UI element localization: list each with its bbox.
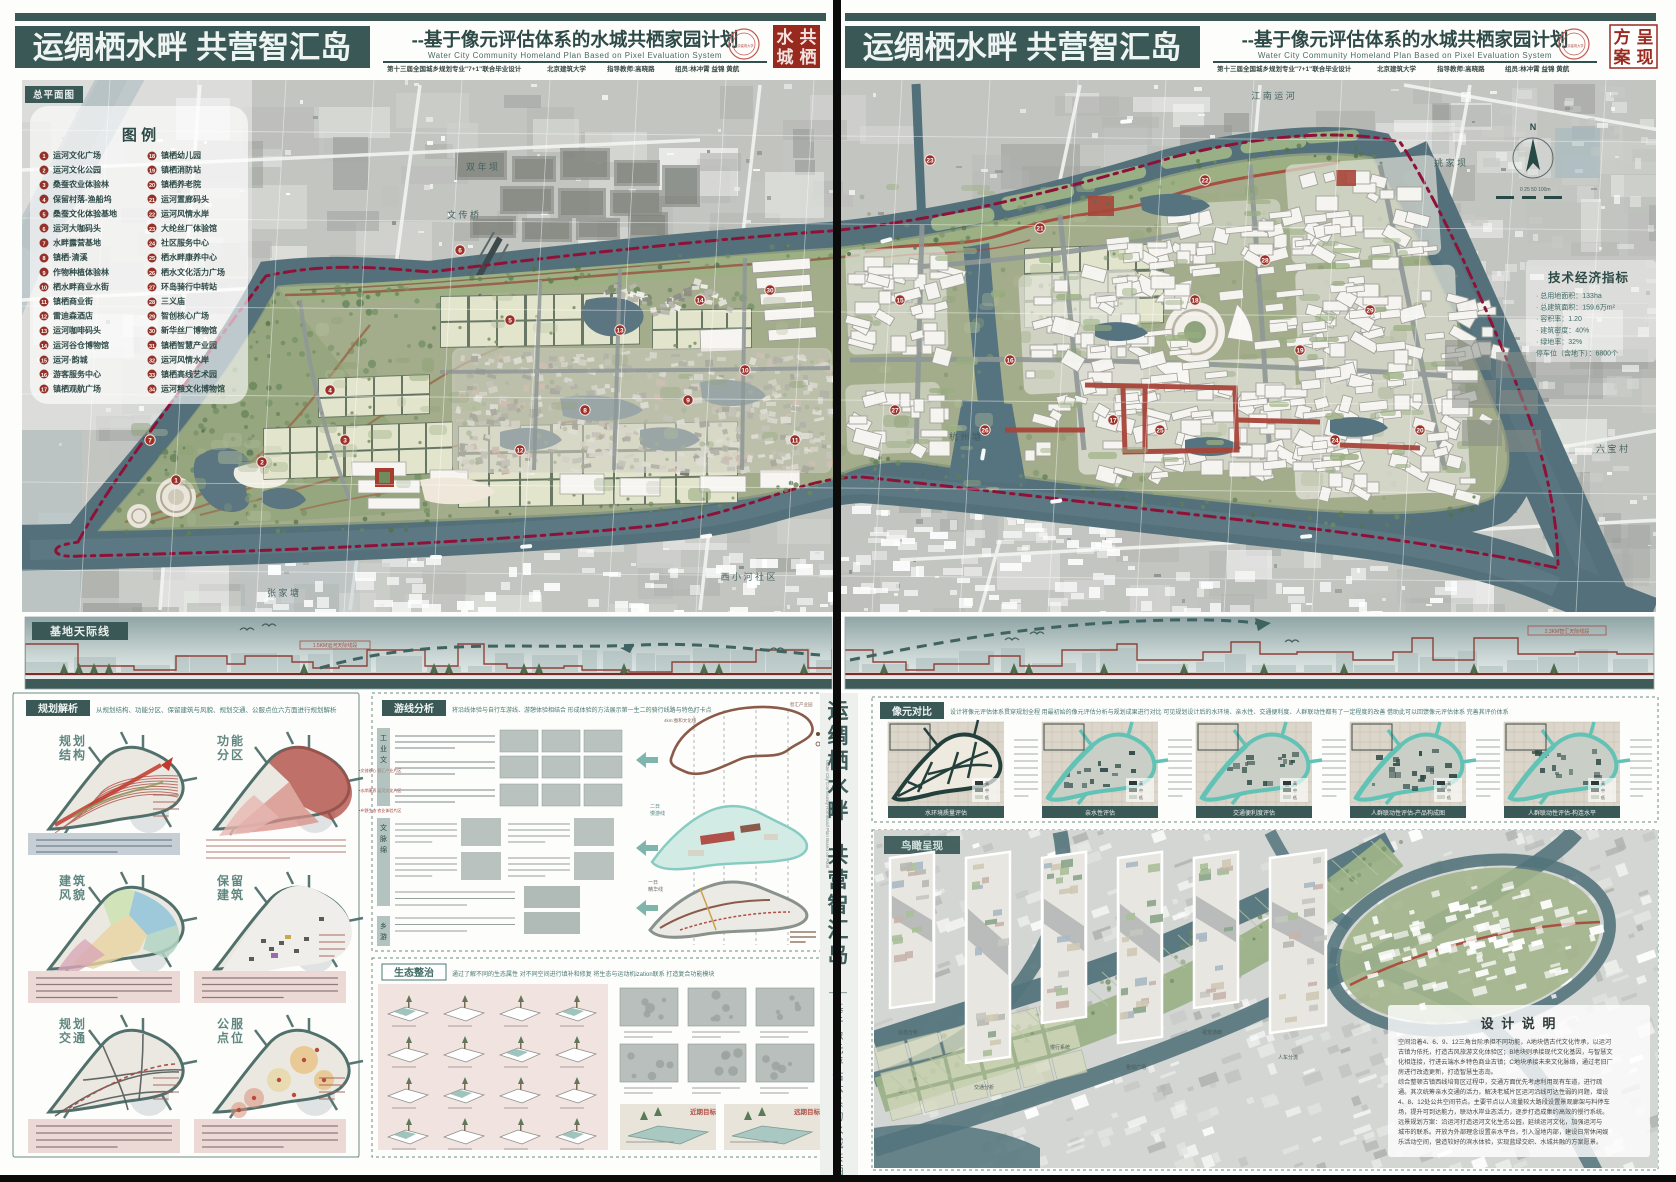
svg-text:交通分析: 交通分析 — [974, 1084, 994, 1091]
svg-text:组员:林冲霄 益锦 黄航: 组员:林冲霄 益锦 黄航 — [675, 64, 740, 73]
svg-text:· 容积率：1.20: · 容积率：1.20 — [1536, 314, 1582, 323]
svg-text:大纶丝厂体验馆: 大纶丝厂体验馆 — [161, 223, 217, 233]
svg-text:姚 家 坝: 姚 家 坝 — [1434, 157, 1466, 168]
svg-text:人群联动性评估-产品构成图: 人群联动性评估-产品构成图 — [1371, 809, 1445, 817]
svg-text:文: 文 — [380, 823, 387, 832]
svg-text:低: 低 — [1601, 794, 1605, 800]
svg-text:· 建筑密度：40%: · 建筑密度：40% — [1536, 326, 1589, 335]
svg-text:运河谷仓博物馆: 运河谷仓博物馆 — [53, 340, 109, 350]
svg-text:15: 15 — [896, 298, 904, 305]
svg-text:双 年 坝: 双 年 坝 — [466, 161, 498, 172]
svg-text:栖水畔商业水街: 栖水畔商业水街 — [53, 281, 109, 291]
svg-text:镇栖观航广场: 镇栖观航广场 — [53, 384, 101, 394]
svg-text:镇栖商业街: 镇栖商业街 — [53, 296, 93, 306]
svg-text:25: 25 — [1156, 428, 1164, 435]
svg-text:规划: 规划 — [59, 1016, 87, 1031]
svg-text:中: 中 — [1139, 787, 1143, 793]
svg-text:总平面图: 总平面图 — [33, 89, 75, 101]
svg-text:房进行改造更新，打造智慧生态岛。: 房进行改造更新，打造智慧生态岛。 — [1398, 1068, 1497, 1076]
svg-text:镇栖养老院: 镇栖养老院 — [161, 179, 201, 189]
svg-text:基地天际线: 基地天际线 — [49, 624, 110, 638]
svg-text:桑蚕农业体验林: 桑蚕农业体验林 — [52, 179, 109, 189]
svg-text:栖水畔康养中心: 栖水畔康养中心 — [161, 252, 217, 262]
svg-text:19: 19 — [1296, 348, 1304, 355]
svg-text:古镇为依托，打造古风旅游文化体验区；B地块则承接现代文化基因: 古镇为依托，打造古风旅游文化体验区；B地块则承接现代文化基因，与智慧文 — [1398, 1048, 1613, 1056]
svg-text:水环境质量评估: 水环境质量评估 — [925, 809, 967, 817]
svg-text:7: 7 — [148, 438, 152, 445]
svg-text:六 宝 村: 六 宝 村 — [1596, 443, 1628, 454]
svg-text:1.5KM运河天际线段: 1.5KM运河天际线段 — [313, 642, 357, 649]
svg-text:27: 27 — [149, 285, 155, 291]
svg-text:高: 高 — [1293, 780, 1297, 786]
svg-text:13: 13 — [616, 328, 624, 335]
svg-text:运河文化公园: 运河文化公园 — [53, 165, 101, 175]
svg-text:建筑: 建筑 — [58, 873, 87, 888]
svg-text:· 绿地率：32%: · 绿地率：32% — [1536, 337, 1582, 346]
svg-text:绵: 绵 — [380, 845, 387, 854]
svg-text:人群联动性评估-构连水平: 人群联动性评估-构连水平 — [1528, 809, 1596, 817]
svg-text:分区: 分区 — [217, 747, 245, 762]
svg-text:17: 17 — [41, 388, 47, 394]
svg-text:· 总用地面积：133ha: · 总用地面积：133ha — [1536, 291, 1602, 300]
svg-text:空间沿着4、6、9、12三角台阶承担不同功能，A地块借古代文: 空间沿着4、6、9、12三角台阶承担不同功能，A地块借古代文化传承，以运河 — [1398, 1038, 1611, 1046]
svg-text:低: 低 — [985, 794, 989, 800]
svg-text:生态整治: 生态整治 — [394, 966, 434, 979]
svg-text:中: 中 — [1293, 787, 1297, 793]
svg-text:乐活动空间，营造较好的滨水体验，实现蓝绿交织、水城共融的方案: 乐活动空间，营造较好的滨水体验，实现蓝绿交织、水城共融的方案愿景。 — [1398, 1138, 1602, 1146]
svg-text:作物种植体验林: 作物种植体验林 — [53, 267, 109, 277]
svg-text:18: 18 — [1191, 298, 1199, 305]
svg-text:北京建筑大学: 北京建筑大学 — [547, 64, 587, 73]
svg-text:城市的联系。开放为外部理念设置亲水平台，引入湿地内部，建设日: 城市的联系。开放为外部理念设置亲水平台，引入湿地内部，建设日常休闲娱 — [1398, 1128, 1608, 1136]
svg-text:•乡野生态 农业体验片区: •乡野生态 农业体验片区 — [359, 807, 401, 813]
svg-text:文: 文 — [380, 755, 387, 764]
svg-text:乡: 乡 — [380, 922, 387, 930]
svg-text:智汇产业园: 智汇产业园 — [790, 701, 813, 708]
svg-text:33: 33 — [149, 373, 155, 379]
svg-text:Water City Community Homeland: Water City Community Homeland Plan Based… — [825, 760, 830, 868]
svg-text:场，提升可到达能力，联动水岸业态活力，逐步打造成集约高效的慢: 场，提升可到达能力，联动水岸业态活力，逐步打造成集约高效的慢行系统。 — [1398, 1108, 1608, 1116]
svg-text:栖水文化活力广场: 栖水文化活力广场 — [161, 267, 225, 277]
svg-text:游线分析: 游线分析 — [394, 702, 434, 715]
svg-text:北京建筑大学: 北京建筑大学 — [1377, 64, 1417, 73]
svg-text:业: 业 — [380, 744, 387, 753]
svg-text:指导教师:高晓路: 指导教师:高晓路 — [607, 64, 655, 73]
svg-text:北京建筑大学: 北京建筑大学 — [734, 43, 753, 48]
svg-text:规划: 规划 — [59, 733, 87, 748]
svg-text:4km:蚕和文化线: 4km:蚕和文化线 — [664, 717, 697, 724]
svg-text:慢游线: 慢游线 — [650, 810, 665, 817]
svg-text:交通: 交通 — [59, 1030, 87, 1045]
svg-text:28: 28 — [149, 300, 155, 306]
svg-text:· 总建筑面积：159.6万m²: · 总建筑面积：159.6万m² — [1536, 303, 1616, 312]
svg-text:16: 16 — [41, 373, 47, 379]
svg-text:通过了解不同的生态属性 对不同空间进行填补和修复 将生态与运: 通过了解不同的生态属性 对不同空间进行填补和修复 将生态与运动机ization联… — [452, 970, 714, 978]
svg-text:11: 11 — [792, 438, 799, 445]
svg-text:北京建筑大学: 北京建筑大学 — [1564, 43, 1583, 48]
svg-text:0 25 50 100m: 0 25 50 100m — [1520, 187, 1551, 193]
svg-text:江 南 运 河: 江 南 运 河 — [1251, 90, 1295, 101]
svg-text:运河置廊码头: 运河置廊码头 — [161, 194, 209, 204]
svg-text:9: 9 — [686, 398, 690, 405]
svg-text:10: 10 — [741, 368, 749, 375]
svg-text:镇栖消防站: 镇栖消防站 — [161, 165, 201, 175]
svg-text:慢行系统: 慢行系统 — [1050, 1044, 1070, 1051]
svg-text:28: 28 — [1261, 258, 1269, 265]
svg-text:将沿线体验与自行车游线、游憩体验相结合 形成体验的方法展示第: 将沿线体验与自行车游线、游憩体验相结合 形成体验的方法展示第一生二的骑行线路与特… — [452, 706, 712, 714]
svg-text:20: 20 — [149, 183, 155, 189]
svg-text:案: 案 — [1613, 47, 1632, 67]
svg-text:--基于像元评估体系的水城共栖家园计划: --基于像元评估体系的水城共栖家园计划 — [1242, 29, 1569, 50]
svg-text:运河风情水岸: 运河风情水岸 — [161, 208, 209, 218]
svg-text:运绸栖水畔 共营智汇岛: 运绸栖水畔 共营智汇岛 — [33, 30, 352, 65]
svg-text:运河粮文化博物馆: 运河粮文化博物馆 — [161, 384, 225, 394]
svg-text:运河文化广场: 运河文化广场 — [53, 150, 101, 160]
svg-text:新华丝厂博物馆: 新华丝厂博物馆 — [161, 325, 217, 335]
svg-text:工: 工 — [380, 735, 387, 742]
svg-text:高: 高 — [985, 780, 989, 786]
svg-text:14: 14 — [696, 298, 704, 305]
svg-text:30: 30 — [149, 329, 155, 335]
svg-text:保留: 保留 — [216, 873, 245, 888]
svg-text:22: 22 — [149, 212, 155, 218]
svg-text:5: 5 — [42, 212, 45, 218]
svg-text:中: 中 — [1447, 787, 1451, 793]
svg-text:栖: 栖 — [800, 47, 817, 67]
svg-text:12: 12 — [516, 448, 524, 455]
svg-text:27: 27 — [891, 408, 899, 415]
svg-text:13: 13 — [41, 329, 47, 335]
svg-text:1: 1 — [42, 154, 45, 160]
svg-text:交通便利度评估: 交通便利度评估 — [1233, 809, 1275, 817]
svg-text:运绸栖水畔 共营智汇岛: 运绸栖水畔 共营智汇岛 — [863, 30, 1182, 65]
svg-text:脉: 脉 — [380, 834, 387, 843]
svg-text:运河风情水岸: 运河风情水岸 — [161, 354, 209, 364]
svg-text:2: 2 — [42, 169, 45, 175]
svg-text:共: 共 — [800, 28, 817, 47]
svg-text:保留村落-渔船坞: 保留村落-渔船坞 — [52, 194, 112, 204]
svg-text:24: 24 — [1331, 438, 1339, 445]
svg-text:运河·韵城: 运河·韵城 — [53, 354, 88, 364]
svg-text:低: 低 — [1139, 794, 1143, 800]
svg-text:低: 低 — [1447, 794, 1451, 800]
svg-text:高: 高 — [1601, 780, 1605, 786]
svg-text:通。其次统筹亲水交通的活力，解决老城片区运河沿线可达性弱的问: 通。其次统筹亲水交通的活力，解决老城片区运河沿线可达性弱的问题，增设 — [1398, 1088, 1608, 1096]
svg-text:17: 17 — [1109, 418, 1117, 425]
svg-text:水: 水 — [777, 27, 795, 47]
svg-text:远景规划方案：沿运河打造运河文化生态公园，延续运河文化，加强: 远景规划方案：沿运河打造运河文化生态公园，延续运河文化，加强运河与 — [1398, 1118, 1602, 1126]
svg-text:社区服务中心: 社区服务中心 — [160, 238, 209, 248]
svg-text:文 传 桥: 文 传 桥 — [447, 209, 479, 220]
svg-text:一日: 一日 — [648, 880, 658, 886]
svg-text:中: 中 — [985, 787, 989, 793]
svg-text:运河咖啡码头: 运河咖啡码头 — [53, 325, 101, 335]
svg-text:技术经济指标: 技术经济指标 — [1548, 270, 1629, 285]
svg-text:桑蚕文化体验基地: 桑蚕文化体验基地 — [52, 208, 117, 218]
svg-text:远期目标: 远期目标 — [794, 1107, 821, 1116]
svg-text:指导教师:高晓路: 指导教师:高晓路 — [1437, 64, 1485, 73]
svg-text:二日: 二日 — [650, 804, 660, 810]
svg-text:杭 州 塘: 杭 州 塘 — [949, 431, 981, 442]
svg-text:风貌: 风貌 — [59, 887, 87, 902]
svg-text:23: 23 — [926, 158, 934, 165]
svg-text:Water City Community Homeland: Water City Community Homeland Plan Based… — [1258, 51, 1552, 60]
svg-text:9: 9 — [42, 271, 45, 277]
svg-text:21: 21 — [149, 198, 155, 204]
svg-text:低: 低 — [1293, 794, 1297, 800]
svg-text:29: 29 — [1366, 308, 1374, 315]
svg-text:游: 游 — [380, 932, 387, 941]
svg-text:26: 26 — [981, 428, 989, 435]
svg-text:西 小 河 社 区: 西 小 河 社 区 — [720, 571, 775, 582]
svg-text:像元对比: 像元对比 — [891, 705, 932, 718]
svg-text:综合整顿古镇西线培育区过程中，交通方面优先考虑利用现有车道，: 综合整顿古镇西线培育区过程中，交通方面优先考虑利用现有车道，进行疏 — [1398, 1078, 1602, 1086]
svg-text:智创核心广场: 智创核心广场 — [161, 311, 209, 321]
svg-text:31: 31 — [149, 344, 155, 350]
svg-text:镇栖智慧产业园: 镇栖智慧产业园 — [161, 340, 217, 350]
svg-text:4、8、12处公共空间节点。主要节点以人流量较大路段设置景观: 4、8、12处公共空间节点。主要节点以人流量较大路段设置景观廊架与料停车 — [1398, 1098, 1610, 1106]
svg-text:近期目标: 近期目标 — [690, 1107, 717, 1116]
svg-text:精华线: 精华线 — [648, 886, 663, 893]
svg-text:1: 1 — [174, 478, 178, 485]
svg-text:城: 城 — [777, 48, 794, 67]
svg-text:4: 4 — [328, 388, 332, 395]
svg-text:32: 32 — [149, 358, 155, 364]
svg-text:16: 16 — [1006, 358, 1014, 365]
svg-text:镇栖·清溪: 镇栖·清溪 — [53, 252, 89, 262]
svg-text:亲水性评估: 亲水性评估 — [1085, 809, 1115, 817]
svg-text:25: 25 — [149, 256, 155, 262]
svg-text:--基于像元评估体系的水城共栖家园计划: --基于像元评估体系的水城共栖家园计划 — [412, 29, 739, 50]
svg-text:从规划结构、功能分区、保留建筑与风貌、规划交通、公服点位六方: 从规划结构、功能分区、保留建筑与风貌、规划交通、公服点位六方面进行规划解析 — [96, 705, 337, 714]
svg-text:游客服务中心: 游客服务中心 — [53, 369, 101, 379]
svg-text:张 家 塘: 张 家 塘 — [267, 587, 299, 598]
svg-text:建筑: 建筑 — [216, 887, 245, 902]
svg-text:6: 6 — [458, 248, 462, 255]
svg-text:15: 15 — [41, 358, 47, 364]
svg-text:环岛骑行中转站: 环岛骑行中转站 — [161, 281, 217, 291]
svg-text:停车位（含地下）：6800个: 停车位（含地下）：6800个 — [1536, 349, 1618, 358]
svg-text:公服: 公服 — [217, 1016, 245, 1031]
svg-text:高: 高 — [1139, 780, 1143, 786]
svg-text:点位: 点位 — [217, 1030, 245, 1045]
svg-text:10: 10 — [41, 285, 47, 291]
svg-text:景观广场: 景观广场 — [1126, 1064, 1146, 1071]
svg-text:鸟瞰呈现: 鸟瞰呈现 — [901, 839, 943, 852]
svg-text:三义庙: 三义庙 — [161, 296, 185, 306]
svg-text:业态分析: 业态分析 — [898, 1029, 918, 1036]
svg-text:结构: 结构 — [59, 747, 87, 762]
svg-text:3: 3 — [42, 183, 45, 189]
svg-text:高: 高 — [1447, 780, 1451, 786]
svg-text:6: 6 — [42, 227, 45, 233]
svg-text:30: 30 — [766, 288, 774, 295]
svg-text:29: 29 — [149, 315, 155, 321]
svg-text:2: 2 — [260, 460, 264, 467]
svg-text:水畔露营基地: 水畔露营基地 — [52, 238, 101, 248]
svg-text:镇栖高线艺术园: 镇栖高线艺术园 — [161, 369, 217, 379]
svg-text:3: 3 — [343, 438, 347, 445]
svg-text:功能: 功能 — [217, 733, 245, 748]
svg-text:运河大咖码头: 运河大咖码头 — [53, 223, 101, 233]
svg-text:第十三届全国城乡规划专业"7+1"联合毕业设计: 第十三届全国城乡规划专业"7+1"联合毕业设计 — [387, 64, 522, 73]
svg-text:组员:林冲霄 益锦 黄航: 组员:林冲霄 益锦 黄航 — [1505, 64, 1570, 73]
svg-text:N: N — [1530, 122, 1537, 132]
svg-text:中: 中 — [1601, 787, 1605, 793]
svg-text:14: 14 — [41, 344, 48, 350]
svg-text:22: 22 — [1201, 178, 1209, 185]
svg-text:化相连接，行进云端水乡特色商业古镇；C地块承接未来文化脉络，: 化相连接，行进云端水乡特色商业古镇；C地块承接未来文化脉络，通过老旧厂 — [1398, 1058, 1613, 1066]
svg-text:26: 26 — [149, 271, 155, 277]
svg-text:规划解析: 规划解析 — [38, 702, 78, 715]
svg-text:7: 7 — [42, 242, 45, 248]
svg-text:方: 方 — [1614, 27, 1631, 47]
svg-text:镇栖幼儿园: 镇栖幼儿园 — [161, 150, 201, 160]
svg-text:19: 19 — [149, 169, 155, 175]
svg-text:11: 11 — [41, 300, 47, 306]
svg-text:18: 18 — [149, 154, 155, 160]
svg-text:人车分流: 人车分流 — [1278, 1054, 1298, 1061]
svg-text:20: 20 — [1416, 428, 1424, 435]
svg-text:24: 24 — [149, 242, 156, 248]
svg-text:8: 8 — [42, 256, 45, 262]
svg-text:8: 8 — [583, 408, 587, 415]
svg-text:12: 12 — [41, 315, 47, 321]
svg-text:视觉通廊: 视觉通廊 — [1202, 1029, 1222, 1036]
svg-text:34: 34 — [149, 388, 156, 394]
svg-text:5: 5 — [508, 318, 512, 325]
svg-text:图 例: 图 例 — [122, 126, 156, 144]
svg-text:21: 21 — [1036, 226, 1044, 233]
svg-text:设计将像元评估体系贯穿规划全程 用最初始的像元评估分析与规划: 设计将像元评估体系贯穿规划全程 用最初始的像元评估分析与规划成果进行对比 可见规… — [950, 708, 1509, 716]
svg-text:呈: 呈 — [1637, 28, 1654, 47]
svg-text:2.3KM智汇天际线段: 2.3KM智汇天际线段 — [1545, 628, 1589, 635]
svg-text:第十三届全国城乡规划专业"7+1"联合毕业设计: 第十三届全国城乡规划专业"7+1"联合毕业设计 — [1217, 64, 1352, 73]
svg-text:现: 现 — [1637, 48, 1654, 67]
svg-text:设 计 说 明: 设 计 说 明 — [1481, 1016, 1558, 1031]
svg-text:Water City Community Homeland: Water City Community Homeland Plan Based… — [428, 51, 722, 60]
svg-text:雷迪森酒店: 雷迪森酒店 — [53, 311, 93, 321]
svg-text:23: 23 — [149, 227, 155, 233]
